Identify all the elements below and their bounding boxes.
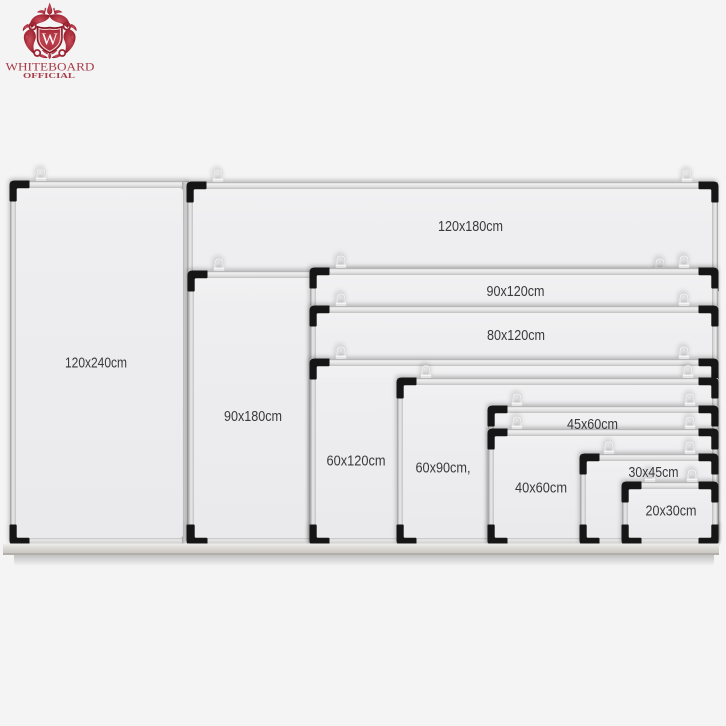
svg-text:W: W <box>42 30 59 49</box>
svg-text:OFFICIAL: OFFICIAL <box>23 72 75 80</box>
svg-text:120x240cm: 120x240cm <box>65 354 127 371</box>
svg-text:90x120cm: 90x120cm <box>487 283 545 300</box>
svg-text:60x120cm: 60x120cm <box>327 452 386 469</box>
svg-text:30x45cm: 30x45cm <box>629 464 679 481</box>
svg-text:20x30cm: 20x30cm <box>646 502 697 519</box>
svg-text:45x60cm: 45x60cm <box>567 416 618 433</box>
svg-text:60x90cm,: 60x90cm, <box>416 459 471 476</box>
svg-text:120x180cm: 120x180cm <box>438 218 503 235</box>
svg-text:90x180cm: 90x180cm <box>224 408 282 425</box>
svg-text:40x60cm: 40x60cm <box>515 479 567 496</box>
svg-text:80x120cm: 80x120cm <box>487 327 545 344</box>
